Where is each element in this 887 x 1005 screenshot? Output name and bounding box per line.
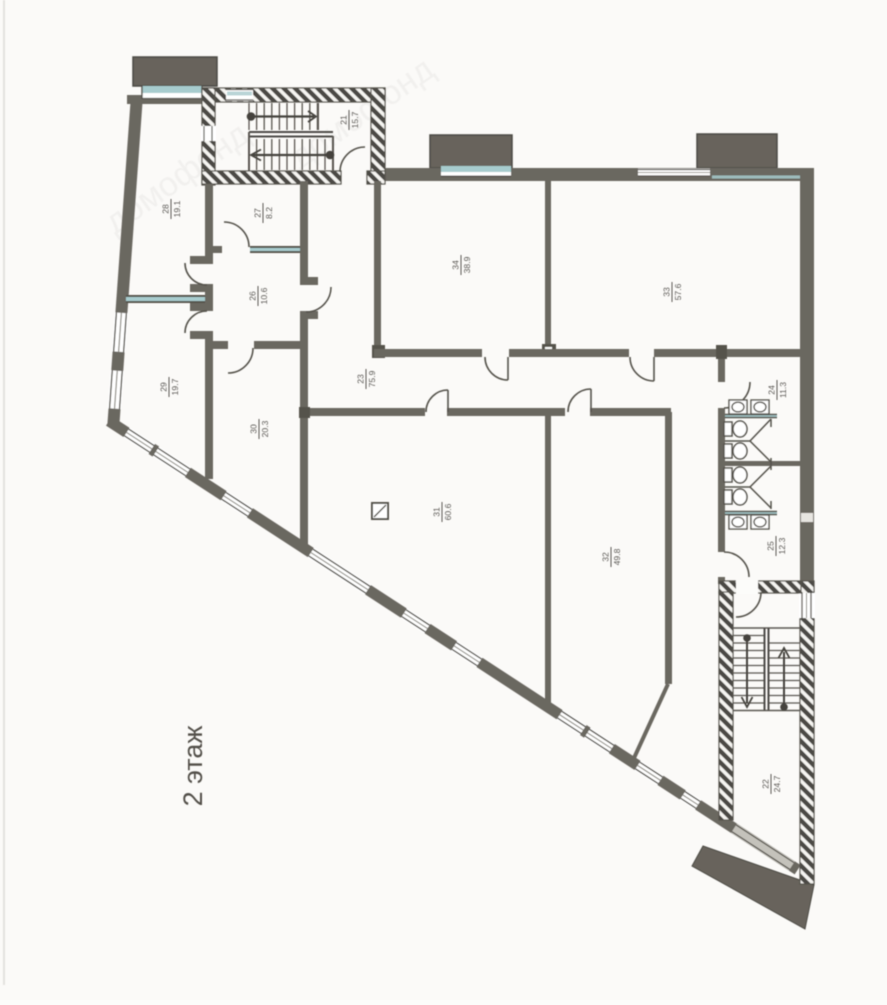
svg-text:12.3: 12.3 xyxy=(777,537,787,554)
svg-text:75.9: 75.9 xyxy=(367,370,377,387)
svg-text:24.7: 24.7 xyxy=(772,775,782,792)
svg-text:19.7: 19.7 xyxy=(170,378,180,395)
svg-text:21: 21 xyxy=(339,115,349,125)
svg-text:38.9: 38.9 xyxy=(462,256,472,273)
svg-text:27: 27 xyxy=(253,208,263,218)
svg-text:25: 25 xyxy=(766,541,776,551)
svg-text:8.2: 8.2 xyxy=(264,207,274,219)
svg-text:19.1: 19.1 xyxy=(172,200,182,217)
svg-text:22: 22 xyxy=(761,779,771,789)
svg-text:57.6: 57.6 xyxy=(673,283,683,300)
svg-text:24: 24 xyxy=(767,385,777,395)
svg-text:31: 31 xyxy=(432,507,442,517)
svg-text:30: 30 xyxy=(249,424,259,434)
svg-text:20.3: 20.3 xyxy=(260,420,270,437)
svg-text:34: 34 xyxy=(451,260,461,270)
svg-text:28: 28 xyxy=(161,204,171,214)
svg-text:26: 26 xyxy=(248,291,258,301)
svg-text:10.6: 10.6 xyxy=(259,287,269,304)
svg-text:15.7: 15.7 xyxy=(350,111,360,128)
svg-text:32: 32 xyxy=(601,552,611,562)
svg-text:49.8: 49.8 xyxy=(612,548,622,565)
svg-text:33: 33 xyxy=(662,287,672,297)
svg-text:60.6: 60.6 xyxy=(443,503,453,520)
svg-text:2 этаж: 2 этаж xyxy=(178,726,208,807)
svg-text:23: 23 xyxy=(356,374,366,384)
svg-text:11.3: 11.3 xyxy=(778,382,788,398)
svg-text:29: 29 xyxy=(159,382,169,392)
